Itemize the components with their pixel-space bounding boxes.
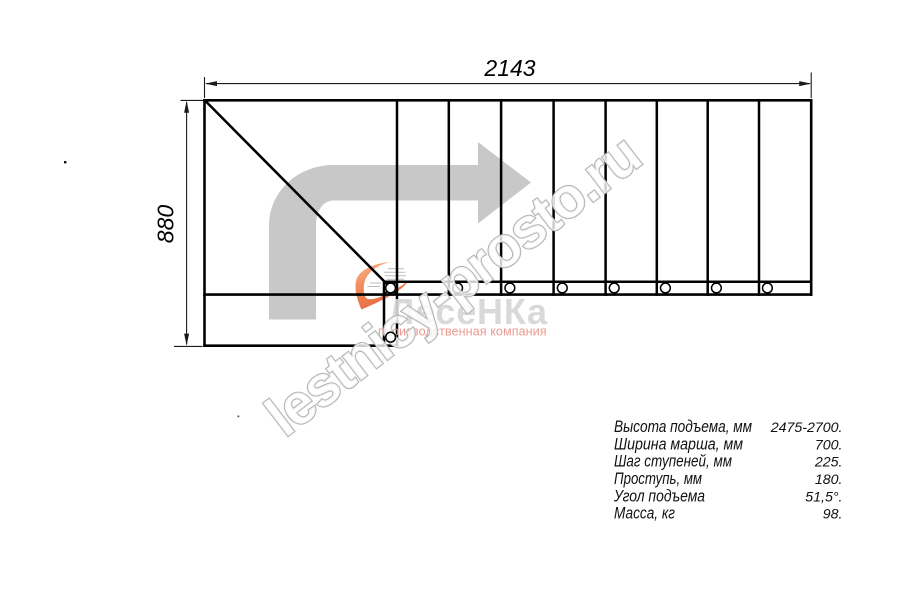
svg-text:Высота подъема, мм: Высота подъема, мм [614,418,752,436]
svg-text:Проступь, мм: Проступь, мм [614,470,702,488]
svg-text:880: 880 [153,205,179,244]
svg-text:180.: 180. [815,472,843,488]
svg-text:2143: 2143 [483,55,535,81]
svg-text:Масса, кг: Масса, кг [614,505,675,523]
svg-text:2475-2700.: 2475-2700. [770,420,843,436]
svg-text:Шаг ступеней, мм: Шаг ступеней, мм [614,453,732,471]
svg-text:Угол подъема: Угол подъема [613,487,705,505]
svg-text:98.: 98. [823,507,843,523]
svg-text:225.: 225. [814,455,843,471]
svg-text:700.: 700. [815,437,843,453]
svg-text:51,5°.: 51,5°. [805,489,842,505]
svg-text:Ширина марша, мм: Ширина марша, мм [614,435,743,453]
